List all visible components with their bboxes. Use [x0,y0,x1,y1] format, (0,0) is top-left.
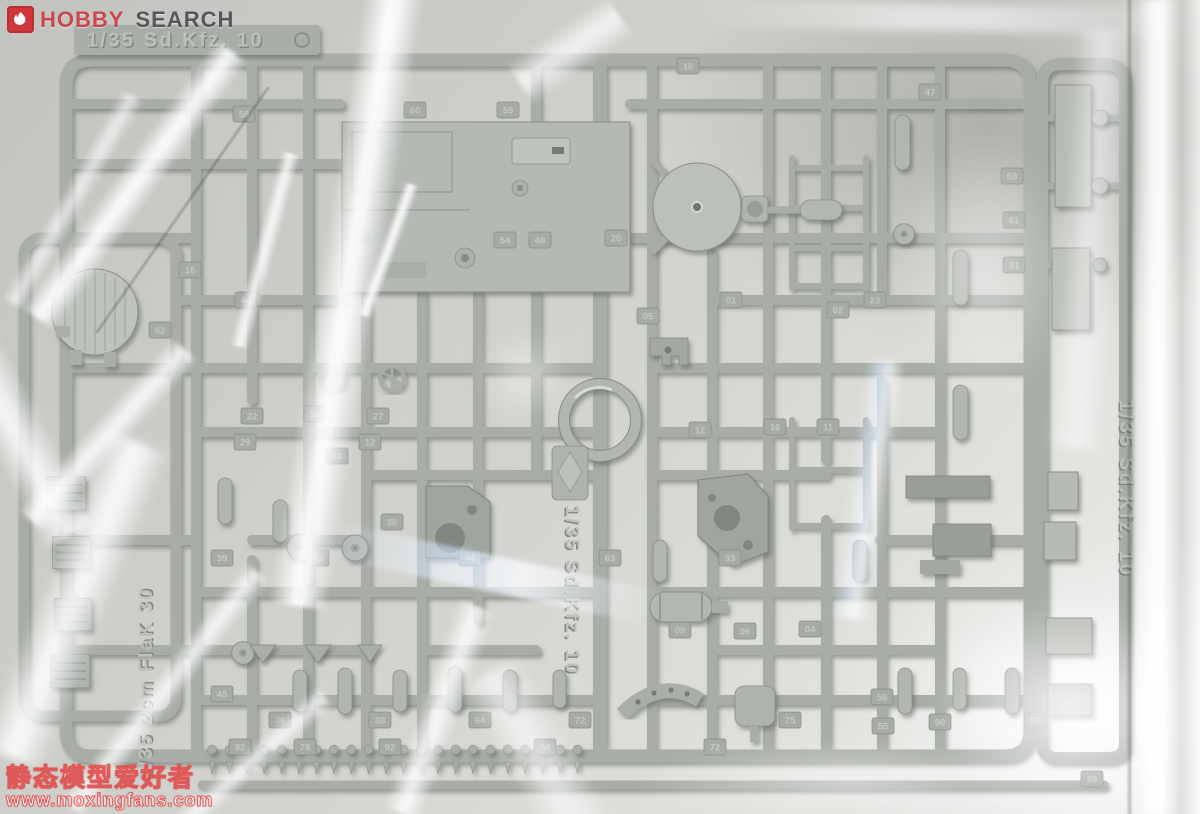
part-number-tag: 82 [229,739,251,755]
svg-text:78: 78 [300,743,311,754]
part-number-tag: 46 [459,550,481,566]
part-number-tag: 02 [827,302,849,318]
part-number-tag: 22 [241,408,263,424]
molded-text-left: 1/35 2cm FlaK 30 [136,587,157,780]
part-number-tag: 62 [149,322,171,338]
svg-text:48: 48 [535,236,546,247]
part-number-tag: 33 [719,550,741,566]
svg-text:58: 58 [239,110,250,121]
part-number-tag: 39 [211,550,233,566]
part-number-tag: 61 [1003,212,1025,228]
part-number-tag: 58 [1001,168,1023,184]
svg-text:12: 12 [695,426,706,437]
part-number-tag: 23 [864,292,886,308]
part-number-tag: 20 [605,230,627,246]
part-number-tag: 59 [497,102,519,118]
part-number-tag: 05 [637,308,659,324]
svg-text:45: 45 [217,690,228,701]
svg-text:20: 20 [611,234,622,245]
svg-text:91: 91 [1030,716,1041,727]
part-number-tag: 72 [704,739,726,755]
part-number-tag: 38 [369,712,391,728]
svg-text:60: 60 [410,106,421,117]
part-number-tag: 60 [404,102,426,118]
part-number-tag: 43 [307,550,329,566]
part-number-tag: 16 [179,262,201,278]
maker-emblem [552,446,588,500]
svg-text:89: 89 [1087,775,1098,786]
svg-text:39: 39 [217,554,228,565]
part-number-tag: 81 [1003,257,1025,273]
svg-text:10: 10 [683,62,694,73]
part-number-tag: 50 [304,406,326,422]
photo-model-kit-sprue-in-bag: 1/35 Sd.Kfz. 10 1/35 Sd.Kfz. 10 1/35 2cm… [0,0,1200,814]
svg-text:16: 16 [185,266,196,277]
svg-text:44: 44 [241,296,252,307]
svg-text:22: 22 [247,412,258,423]
part-number-tag: 63 [599,550,621,566]
part-number-tag: 75 [779,712,801,728]
stowage-box-parts [1044,85,1108,716]
part-number-tag: 91 [1024,712,1046,728]
svg-text:11: 11 [823,423,834,434]
svg-text:55: 55 [878,722,889,733]
svg-text:02: 02 [833,306,844,317]
svg-text:58: 58 [1007,172,1018,183]
svg-text:12: 12 [365,438,376,449]
part-number-tag: 64 [469,712,491,728]
part-number-tag: 45 [211,686,233,702]
part-number-tag: 92 [379,739,401,755]
part-number-tag: 16 [764,419,786,435]
svg-text:90: 90 [935,718,946,729]
wheel-part [894,224,915,245]
svg-text:54: 54 [500,236,511,247]
svg-text:38: 38 [375,716,386,727]
svg-text:82: 82 [235,743,246,754]
watermark: 静态模型爱好者 www.moxingfans.com [6,765,213,810]
svg-text:27: 27 [373,412,384,423]
svg-text:43: 43 [313,554,324,565]
svg-text:47: 47 [925,88,936,99]
part-number-tag: 89 [1081,771,1103,787]
part-number-tag: 11 [817,419,839,435]
hobby-search-logo: HOBBY SEARCH [7,6,234,33]
svg-text:30: 30 [387,518,398,529]
svg-text:75: 75 [785,716,796,727]
svg-text:36: 36 [275,716,286,727]
part-number-tag: 06 [734,623,756,639]
logo-text-search: SEARCH [135,7,234,33]
floor-plate-part [342,122,630,292]
part-number-tag: 47 [919,84,941,100]
svg-text:56: 56 [877,693,888,704]
gun-cradle-bracket-left [426,486,490,558]
svg-text:29: 29 [240,438,251,449]
watermark-url: www.moxingfans.com [6,791,213,810]
part-number-tag: 29 [234,434,256,450]
watermark-title: 静态模型爱好者 [6,765,213,791]
svg-text:81: 81 [1009,261,1020,272]
part-number-tag: 90 [929,714,951,730]
svg-text:63: 63 [605,554,616,565]
svg-text:72: 72 [710,743,721,754]
svg-text:94: 94 [540,743,551,754]
part-number-tag: 44 [235,292,257,308]
logo-text-hobby: HOBBY [40,7,124,33]
svg-text:62: 62 [155,326,166,337]
part-number-tag: 48 [529,232,551,248]
svg-text:33: 33 [725,554,736,565]
hatch-plate [50,654,90,688]
part-number-tag: 78 [294,739,316,755]
part-number-tag: 12 [359,434,381,450]
svg-text:72: 72 [575,716,586,727]
molded-text-right: 1/35 Sd.Kfz. 10 [1115,400,1137,578]
part-number-tag: 09 [669,622,691,638]
svg-text:50: 50 [310,410,321,421]
part-number-tag: 10 [677,58,699,74]
hatch-plate [52,536,90,568]
svg-text:61: 61 [1009,216,1020,227]
svg-text:04: 04 [805,625,816,636]
molded-text-center: 1/35 Sd.Kfz. 10 [561,505,582,676]
svg-text:01: 01 [726,296,737,307]
wheel-part [342,535,368,561]
part-number-tag: 56 [871,689,893,705]
part-number-tag: 12 [689,422,711,438]
part-number-tag: 54 [494,232,516,248]
part-number-tag: 58 [233,106,255,122]
svg-text:09: 09 [675,626,686,637]
svg-text:18: 18 [332,452,343,463]
part-number-tag: 01 [720,292,742,308]
part-number-tag: 55 [872,718,894,734]
slab-parts [906,476,991,574]
svg-text:59: 59 [503,106,514,117]
svg-text:64: 64 [475,716,486,727]
svg-text:92: 92 [385,743,396,754]
svg-text:46: 46 [465,554,476,565]
sprue-parts-tree: 1/35 Sd.Kfz. 10 1/35 Sd.Kfz. 10 1/35 2cm… [0,0,1200,814]
svg-text:16: 16 [770,423,781,434]
hatch-plate [54,598,92,630]
svg-text:06: 06 [740,627,751,638]
part-number-tag: 72 [569,712,591,728]
svg-text:23: 23 [870,296,881,307]
part-number-tag: 36 [269,712,291,728]
svg-text:05: 05 [643,312,654,323]
part-number-tag: 94 [534,739,556,755]
part-number-tag: 30 [381,514,403,530]
bag-right-edge [1138,0,1200,814]
flame-icon [7,6,34,33]
hatch-plate [46,476,86,510]
part-number-tag: 18 [326,448,348,464]
part-number-tag: 27 [367,408,389,424]
part-number-tag: 04 [799,621,821,637]
